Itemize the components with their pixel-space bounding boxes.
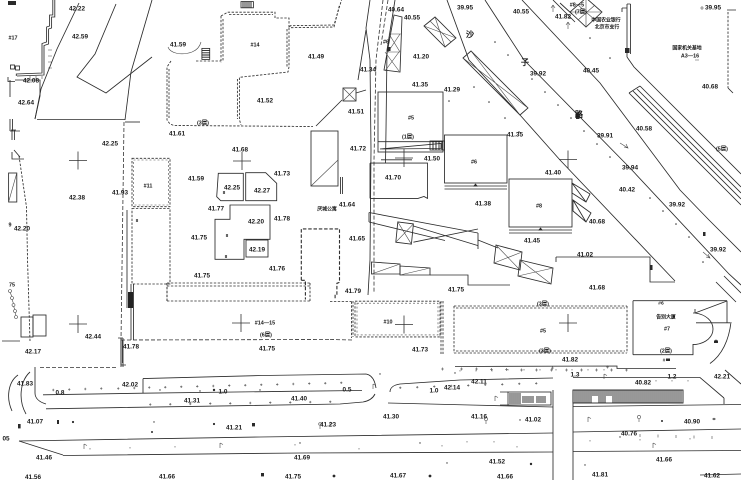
svg-text:39.95: 39.95: [457, 5, 473, 12]
svg-text:75: 75: [9, 283, 15, 289]
svg-text:42.64: 42.64: [18, 100, 34, 107]
svg-text:40.64: 40.64: [388, 7, 404, 14]
svg-text:子: 子: [521, 58, 529, 67]
svg-text:41.73: 41.73: [412, 347, 428, 354]
svg-text:41.38: 41.38: [475, 201, 491, 208]
svg-text:41.79: 41.79: [345, 288, 361, 295]
svg-text:41.45: 41.45: [524, 238, 540, 245]
svg-text:42.19: 42.19: [249, 247, 265, 254]
svg-text:41.34: 41.34: [360, 67, 376, 74]
svg-text:41.67: 41.67: [390, 473, 406, 480]
svg-text:41.40: 41.40: [545, 170, 561, 177]
svg-text:41.51: 41.51: [348, 109, 364, 116]
svg-text:#10: #10: [384, 320, 393, 326]
svg-text:9: 9: [9, 223, 12, 229]
svg-text:沙: 沙: [466, 30, 475, 39]
svg-text:41.68: 41.68: [589, 285, 605, 292]
svg-text:北京市支行: 北京市支行: [595, 24, 620, 31]
svg-text:1.3: 1.3: [571, 372, 580, 379]
svg-text:#: #: [663, 358, 666, 364]
svg-text:41.52: 41.52: [489, 459, 505, 466]
svg-text:41.73: 41.73: [274, 171, 290, 178]
svg-text:40.42: 40.42: [619, 187, 635, 194]
svg-text:41.35: 41.35: [507, 132, 523, 139]
svg-text:#8: #8: [536, 204, 542, 210]
svg-text:0.5: 0.5: [343, 387, 352, 394]
svg-text:41.61: 41.61: [169, 131, 185, 138]
svg-text:41.56: 41.56: [25, 474, 41, 480]
svg-text:(5层): (5层): [716, 145, 728, 153]
svg-text:41.78: 41.78: [123, 344, 139, 351]
svg-text:41.30: 41.30: [383, 414, 399, 421]
svg-text:39.91: 39.91: [597, 133, 613, 140]
svg-text:42.22: 42.22: [69, 6, 85, 13]
svg-text:42.25: 42.25: [224, 185, 240, 192]
svg-text:42.27: 42.27: [254, 188, 270, 195]
svg-text:39.94: 39.94: [622, 165, 638, 172]
svg-text:41.81: 41.81: [592, 472, 608, 479]
svg-text:41.20: 41.20: [413, 54, 429, 61]
svg-text:41.76: 41.76: [269, 266, 285, 273]
svg-text:41.77: 41.77: [208, 206, 224, 213]
svg-text:42.44: 42.44: [85, 334, 101, 341]
svg-text:41.16: 41.16: [471, 414, 487, 421]
svg-text:41.93: 41.93: [112, 190, 128, 197]
svg-text:(6层): (6层): [260, 331, 272, 339]
svg-text:(3层): (3层): [197, 119, 209, 127]
svg-text:#6: #6: [471, 160, 477, 166]
svg-text:41.35: 41.35: [412, 82, 428, 89]
svg-text:42.17: 42.17: [25, 349, 41, 356]
svg-text:41.75: 41.75: [448, 287, 464, 294]
svg-text:42.38: 42.38: [69, 195, 85, 202]
svg-text:41.02: 41.02: [577, 252, 593, 259]
svg-text:39.92: 39.92: [669, 202, 685, 209]
svg-text:40.58: 40.58: [636, 126, 652, 133]
svg-text:#6: #6: [658, 301, 664, 307]
svg-text:41.59: 41.59: [188, 176, 204, 183]
svg-text:41.64: 41.64: [339, 202, 355, 209]
svg-text:41.50: 41.50: [424, 156, 440, 163]
svg-text:41.59: 41.59: [170, 42, 186, 49]
svg-text:41.75: 41.75: [285, 474, 301, 480]
svg-text:39.92: 39.92: [530, 71, 546, 78]
svg-text:国家机关基地: 国家机关基地: [672, 45, 701, 52]
svg-text:#11: #11: [144, 184, 153, 190]
svg-text:42.20: 42.20: [248, 219, 264, 226]
svg-text:42.25: 42.25: [102, 141, 118, 148]
svg-text:42.59: 42.59: [72, 34, 88, 41]
svg-text:中国农业银行: 中国农业银行: [591, 17, 620, 24]
svg-text:40.68: 40.68: [589, 219, 605, 226]
svg-text:1.0: 1.0: [430, 388, 439, 395]
svg-text:41.78: 41.78: [274, 216, 290, 223]
svg-text:A3—16: A3—16: [681, 54, 699, 60]
svg-text:42.08: 42.08: [23, 78, 39, 85]
svg-text:41.66: 41.66: [656, 457, 672, 464]
svg-text:41.69: 41.69: [294, 455, 310, 462]
svg-text:41.82: 41.82: [555, 14, 571, 21]
svg-text:(7层): (7层): [575, 8, 587, 16]
svg-text:42.20: 42.20: [14, 226, 30, 233]
svg-text:42.11: 42.11: [471, 379, 487, 386]
svg-text:40.76: 40.76: [621, 431, 637, 438]
svg-text:41.02: 41.02: [525, 417, 541, 424]
svg-text:41.75: 41.75: [259, 346, 275, 353]
svg-text:(3层): (3层): [539, 347, 551, 355]
svg-text:41.23: 41.23: [320, 422, 336, 429]
svg-text:40.55: 40.55: [513, 9, 529, 16]
svg-text:40.45: 40.45: [583, 68, 599, 75]
svg-text:41.62: 41.62: [704, 473, 720, 480]
svg-text:41.65: 41.65: [349, 236, 365, 243]
svg-text:40.82: 40.82: [635, 380, 651, 387]
svg-text:05: 05: [2, 436, 10, 443]
svg-text:41.31: 41.31: [184, 398, 200, 405]
svg-text:40.90: 40.90: [684, 419, 700, 426]
svg-text:(3层): (3层): [537, 300, 549, 308]
svg-text:41.52: 41.52: [257, 98, 273, 105]
svg-text:40.68: 40.68: [702, 84, 718, 91]
svg-text:厌城公寓: 厌城公寓: [317, 206, 337, 213]
svg-text:路: 路: [575, 109, 584, 119]
svg-text:#5: #5: [540, 329, 546, 335]
svg-text:(1层): (1层): [402, 133, 414, 141]
svg-text:41.75: 41.75: [194, 273, 210, 280]
svg-text:41.75: 41.75: [191, 235, 207, 242]
svg-text:41.66: 41.66: [497, 474, 513, 480]
svg-text:#6: #6: [383, 40, 389, 46]
svg-text:41.66: 41.66: [159, 474, 175, 480]
svg-text:42.14: 42.14: [444, 385, 460, 392]
svg-text:39.92: 39.92: [710, 247, 726, 254]
svg-text:#7: #7: [664, 327, 670, 333]
svg-text:41.46: 41.46: [36, 455, 52, 462]
svg-text:1.2: 1.2: [668, 374, 677, 381]
svg-text:41.83: 41.83: [17, 381, 33, 388]
svg-text:#14—15: #14—15: [255, 321, 275, 327]
svg-text:41.68: 41.68: [232, 147, 248, 154]
svg-text:41.72: 41.72: [350, 146, 366, 153]
svg-text:41.70: 41.70: [385, 175, 401, 182]
svg-text:40.55: 40.55: [404, 15, 420, 22]
svg-text:1.0: 1.0: [219, 389, 228, 396]
svg-text:(2层): (2层): [660, 347, 672, 355]
svg-text:42.21: 42.21: [714, 374, 730, 381]
svg-text:#: #: [715, 339, 718, 345]
svg-text:#8—5: #8—5: [570, 3, 584, 9]
svg-text:告别大厦: 告别大厦: [656, 314, 676, 321]
svg-text:42.02: 42.02: [122, 382, 138, 389]
svg-text:0.8: 0.8: [56, 390, 65, 397]
svg-text:41.21: 41.21: [226, 425, 242, 432]
svg-text:#14: #14: [251, 43, 260, 49]
svg-text:41.49: 41.49: [308, 54, 324, 61]
svg-text:41.29: 41.29: [444, 87, 460, 94]
svg-text:41.40: 41.40: [291, 396, 307, 403]
svg-text:#17: #17: [9, 36, 18, 42]
svg-text:41.82: 41.82: [562, 357, 578, 364]
svg-text:41.07: 41.07: [27, 419, 43, 426]
svg-text:#5: #5: [408, 116, 414, 122]
svg-text:39.95: 39.95: [705, 5, 721, 12]
